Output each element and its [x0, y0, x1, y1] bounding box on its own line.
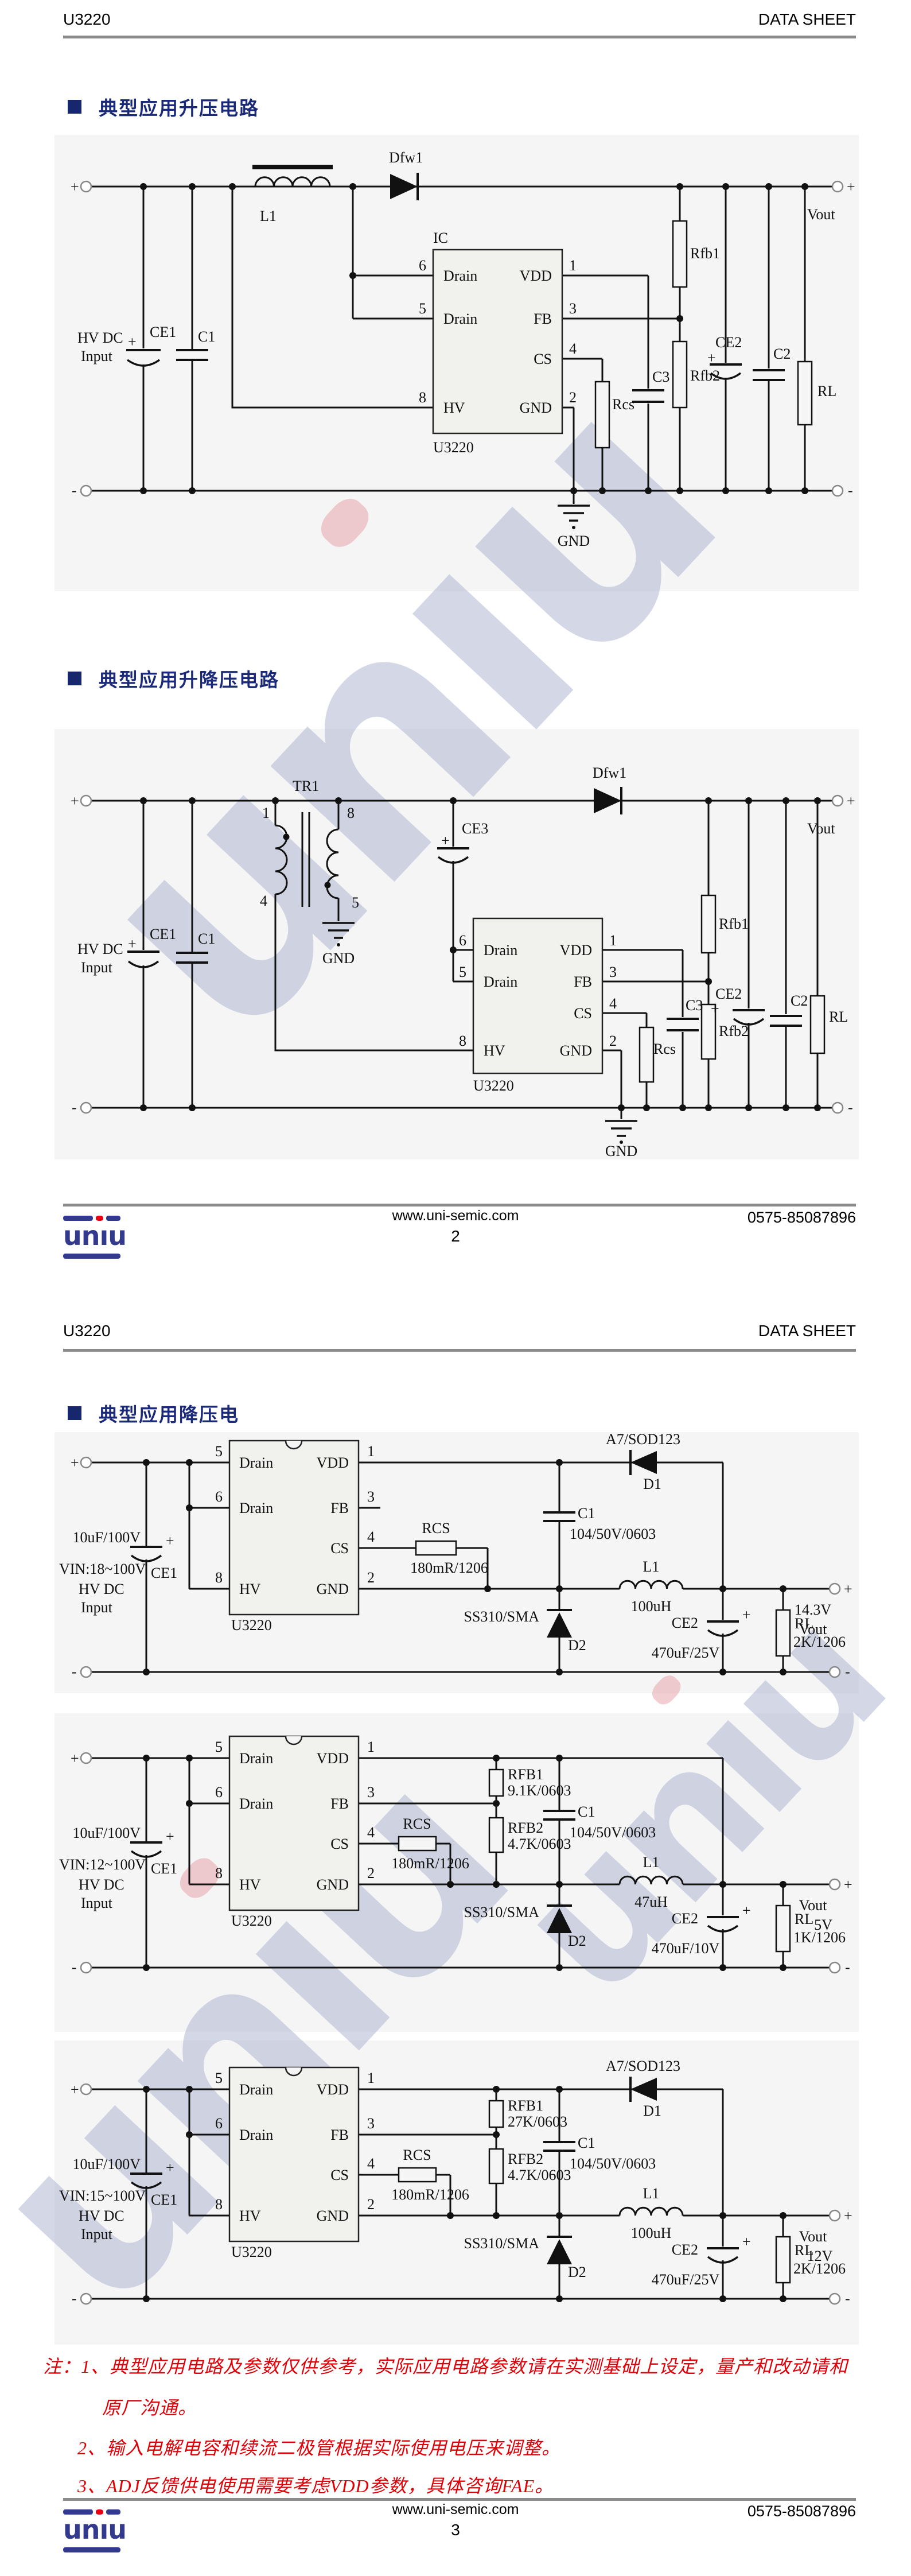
pin-hv: HV [443, 399, 465, 416]
logo-underline [63, 1254, 120, 1259]
ce2-plus: + [742, 1902, 751, 1919]
vout-label: Vout [807, 820, 835, 837]
minus-out: - [845, 1959, 850, 1976]
pin8-num: 8 [215, 2196, 223, 2213]
c1-label: C1 [198, 328, 215, 345]
rfb1-label: RFB1 [508, 2097, 543, 2114]
l1-value: 47uH [634, 1894, 668, 1910]
page2-header-rule [63, 36, 856, 38]
datasheet-page: U3220 DATA SHEET 典型应用升压电路 unıu [0, 0, 911, 2576]
buck2-circuit-schematic: + - + - 10uF/100V + CE1 VIN:12~100V HV D… [54, 1713, 859, 2032]
part-label: U3220 [231, 1617, 272, 1634]
c1-value: 104/50V/0603 [570, 1824, 656, 1841]
note-line-2: 原厂沟通。 [102, 2393, 197, 2420]
d2-type: SS310/SMA [464, 2235, 540, 2252]
l1-label: L1 [643, 2185, 660, 2202]
phone-page2: 0575-85087896 [631, 1209, 856, 1227]
pin5-num: 5 [215, 2070, 223, 2086]
pin-cs: CS [574, 1005, 592, 1022]
pin1-num: 1 [367, 1443, 375, 1460]
plus-in: + [71, 1750, 79, 1767]
part-label: U3220 [433, 439, 474, 456]
dfw1-label: Dfw1 [593, 765, 626, 781]
page2-doc-title: DATA SHEET [574, 10, 856, 29]
c1-label: C1 [198, 930, 215, 947]
hvdc-label: HV DC [79, 2208, 124, 2224]
pin6-num: 6 [215, 1488, 223, 1505]
rl-label: RL [829, 1008, 848, 1025]
rfb2-label: Rfb2 [719, 1023, 749, 1039]
vout-line1: Vout [799, 1897, 827, 1914]
rfb1-label: Rfb1 [690, 245, 720, 262]
rcs-value: 180mR/1206 [410, 1559, 488, 1576]
gnd-tr-label: GND [322, 950, 355, 967]
d1-type: A7/SOD123 [606, 1432, 680, 1448]
d2-diode-icon [547, 1610, 572, 1638]
c1-label: C1 [578, 1505, 595, 1522]
ce2-label: CE2 [715, 334, 742, 351]
rcs-label: Rcs [653, 1041, 676, 1057]
ce1-plus: + [166, 1533, 174, 1549]
vout-line1: 14.3V [795, 1601, 832, 1618]
pin-cs: CS [330, 2167, 349, 2183]
page3-header-rule [63, 1349, 856, 1352]
logo-underline [63, 2547, 120, 2552]
pin3-num: 3 [609, 964, 617, 980]
minus-in: - [72, 1663, 77, 1680]
d1-diode-icon [630, 1450, 657, 1475]
page3-product-title: U3220 [63, 1322, 111, 1340]
rfb2-label: RFB2 [508, 2151, 543, 2167]
d2-label: D2 [568, 2264, 586, 2280]
d2-type: SS310/SMA [464, 1904, 540, 1921]
vin-label: VIN:15~100V [59, 2187, 146, 2204]
pin1-num: 1 [367, 2070, 375, 2086]
input-label: Input [81, 959, 113, 976]
rfb2-value: 4.7K/0603 [508, 1836, 571, 1852]
ce1-plus: + [128, 936, 137, 952]
transformer-phase-dots [283, 834, 331, 889]
ce2-value: 470uF/25V [652, 1644, 720, 1661]
hvdc-label: HV DC [79, 1581, 124, 1597]
buckboost-circuit-schematic: + - + - Vout TR1 1 8 4 5 GND Dfw1 CE3 + … [54, 729, 859, 1159]
d2-diode-icon [547, 1906, 572, 1933]
boost-earth-icon [558, 506, 590, 529]
plus-out: + [847, 793, 855, 809]
bullet-square [68, 672, 81, 685]
pin-hv: HV [239, 1581, 261, 1597]
dfw1-diode-icon [594, 787, 621, 814]
pin-drain2: Drain [239, 1500, 273, 1516]
pin-drain1: Drain [484, 942, 517, 959]
c1-label: C1 [578, 2135, 595, 2151]
gnd-label: GND [558, 533, 590, 549]
buckboost-terminals [81, 796, 843, 1113]
ce3-label: CE3 [462, 820, 488, 837]
minus-out: - [848, 1099, 853, 1116]
pin-fb: FB [330, 1500, 349, 1516]
pin6-num: 6 [459, 932, 466, 949]
ce2-plus: + [742, 2233, 751, 2250]
plus-out: + [844, 1581, 852, 1597]
minus-in: - [72, 2290, 77, 2307]
pin8-num: 8 [215, 1865, 223, 1881]
pin5-num: 5 [215, 1739, 223, 1755]
l1-value: 100uH [631, 1598, 672, 1615]
l1-label: L1 [643, 1558, 660, 1575]
d1-diode-icon [630, 2077, 657, 2102]
pin4-num: 4 [569, 340, 577, 357]
pin-gnd: GND [520, 399, 552, 416]
pin-hv: HV [239, 1876, 261, 1893]
minus-out: - [845, 1663, 850, 1680]
ce2-label: CE2 [715, 986, 742, 1002]
pin2-num: 2 [367, 2196, 375, 2213]
pin-drain1: Drain [443, 267, 477, 284]
c1-label: C1 [578, 1803, 595, 1820]
plus-in: + [71, 2081, 79, 2098]
pin-drain2: Drain [443, 311, 477, 327]
ce1-plus: + [166, 2159, 174, 2176]
ce1-value: 10uF/100V [73, 2156, 141, 2172]
pin-hv: HV [239, 2208, 261, 2224]
pin5-num: 5 [459, 964, 466, 980]
buck2-labels: + - + - 10uF/100V + CE1 VIN:12~100V HV D… [59, 1739, 852, 1976]
rcs-label: Rcs [612, 396, 634, 413]
pin3-num: 3 [569, 300, 577, 317]
minus-in: - [72, 1959, 77, 1976]
pin-vdd: VDD [560, 942, 592, 959]
c1-value: 104/50V/0603 [570, 2155, 656, 2172]
pin-gnd: GND [317, 1876, 349, 1893]
c1-value: 104/50V/0603 [570, 1526, 656, 1542]
pin-gnd: GND [317, 2208, 349, 2224]
section-boost-title: 典型应用升压电路 [99, 93, 259, 121]
pin3-num: 3 [367, 2115, 375, 2132]
tr-pin5: 5 [352, 894, 359, 911]
note-line-3: 2、输入电解电容和续流二极管根据实际使用电压来调整。 [77, 2434, 560, 2460]
inductor-core-bar [252, 165, 333, 169]
tr-pin4: 4 [260, 893, 267, 909]
ce1-value: 10uF/100V [73, 1825, 141, 1841]
page2-footer-rule [63, 1204, 856, 1206]
c2-label: C2 [773, 346, 791, 362]
pin-fb: FB [330, 2127, 349, 2143]
c3-label: C3 [686, 997, 703, 1014]
rfb1-label: Rfb1 [719, 915, 749, 932]
pin-hv: HV [484, 1042, 505, 1059]
page3-doc-title: DATA SHEET [574, 1322, 856, 1340]
d2-label: D2 [568, 1637, 586, 1654]
l1-label: L1 [260, 208, 277, 224]
hvdc-label: HV DC [77, 329, 123, 346]
plus-in: + [71, 1454, 79, 1471]
pin2-num: 2 [367, 1569, 375, 1586]
rcs-value: 180mR/1206 [391, 2186, 469, 2203]
pin8-num: 8 [419, 389, 426, 406]
pin-drain1: Drain [239, 1454, 273, 1471]
rcs-label: RCS [422, 1520, 450, 1537]
l1-label: L1 [643, 1854, 660, 1871]
pin5-num: 5 [419, 300, 426, 317]
rcs-value: 180mR/1206 [391, 1855, 469, 1872]
buckboost-electrolytic-arcs [129, 857, 764, 1025]
pin1-num: 1 [609, 932, 617, 949]
pin4-num: 4 [367, 1528, 375, 1545]
section-buck-heading: 典型应用降压电 [68, 1399, 239, 1427]
vout-line2: 5V [814, 1917, 832, 1933]
pin8-num: 8 [459, 1033, 466, 1049]
d2-diode-icon [547, 2237, 572, 2264]
dfw1-diode-icon [390, 173, 418, 200]
ce1-plus: + [128, 333, 137, 350]
minus-out: - [848, 482, 853, 499]
d2-label: D2 [568, 1933, 586, 1949]
ce2-value: 470uF/10V [652, 1940, 720, 1957]
pin-cs: CS [534, 351, 552, 367]
page3-footer-rule [63, 2498, 856, 2501]
input-label: Input [81, 348, 113, 364]
plus-in: + [71, 793, 79, 809]
section-boost-heading: 典型应用升压电路 [68, 93, 259, 121]
buck1-resistors [416, 1541, 790, 1656]
tr-pin8: 8 [347, 805, 355, 821]
ce1-label: CE1 [151, 2191, 177, 2208]
ce2-plus: + [711, 1000, 719, 1017]
buck3-circuit-schematic: + - + - 10uF/100V + CE1 VIN:15~100V HV D… [54, 2040, 859, 2345]
note-line-4: 3、ADJ反馈供电使用需要考虑VDD参数，具体咨询FAE。 [77, 2472, 554, 2498]
pin3-num: 3 [367, 1784, 375, 1801]
ce1-plus: + [166, 1828, 174, 1845]
rcs-label: RCS [403, 2147, 431, 2163]
ce2-label: CE2 [672, 1615, 698, 1631]
pin4-num: 4 [367, 1824, 375, 1841]
d2-type: SS310/SMA [464, 1608, 540, 1625]
pin-fb: FB [574, 973, 592, 990]
rfb1-label: RFB1 [508, 1766, 543, 1783]
minus-in: - [72, 1099, 77, 1116]
pin-fb: FB [330, 1795, 349, 1812]
pin-drain1: Drain [239, 2081, 273, 2098]
page-number-3: 3 [54, 2521, 857, 2539]
part-label: U3220 [231, 1912, 272, 1929]
vin-label: VIN:12~100V [59, 1856, 146, 1873]
pin6-num: 6 [215, 1784, 223, 1801]
bullet-square [68, 100, 81, 114]
vout-label: Vout [807, 206, 835, 223]
pin-vdd: VDD [520, 267, 552, 284]
phone-page3: 0575-85087896 [631, 2503, 856, 2520]
rcs-label: RCS [403, 1815, 431, 1832]
rfb2-label: Rfb2 [690, 367, 720, 384]
pin6-num: 6 [419, 257, 426, 274]
ce1-value: 10uF/100V [73, 1529, 141, 1546]
rfb2-label: RFB2 [508, 1820, 543, 1836]
minus-in: - [72, 482, 77, 499]
pin6-num: 6 [215, 2115, 223, 2132]
pin-cs: CS [330, 1836, 349, 1852]
pin5-num: 5 [215, 1443, 223, 1460]
ce3-plus: + [441, 832, 450, 849]
d1-label: D1 [643, 2102, 661, 2119]
section-buck-title: 典型应用降压电 [99, 1399, 239, 1427]
plus-out: + [844, 2208, 852, 2224]
c2-label: C2 [791, 992, 808, 1009]
rl-label: RL [817, 383, 836, 399]
ce1-label: CE1 [151, 1860, 177, 1877]
ce2-plus: + [742, 1607, 751, 1623]
page2-product-title: U3220 [63, 10, 111, 29]
input-label: Input [81, 1599, 113, 1616]
vout-line1: Vout [799, 2228, 827, 2245]
input-label: Input [81, 2226, 113, 2243]
part-label: U3220 [231, 2244, 272, 2260]
input-label: Input [81, 1895, 113, 1911]
dfw1-label: Dfw1 [389, 149, 423, 166]
pin-vdd: VDD [317, 1750, 349, 1767]
pin2-num: 2 [569, 389, 577, 406]
c3-label: C3 [652, 368, 669, 385]
rfb1-value: 27K/0603 [508, 2113, 567, 2130]
rfb1-value: 9.1K/0603 [508, 1782, 571, 1799]
hvdc-label: HV DC [77, 941, 123, 957]
pin1-num: 1 [367, 1739, 375, 1755]
tr1-label: TR1 [293, 778, 319, 794]
buck3-labels: + - + - 10uF/100V + CE1 VIN:15~100V HV D… [59, 2058, 852, 2307]
vin-label: VIN:18~100V [59, 1561, 146, 1577]
ce2-value: 470uF/25V [652, 2271, 720, 2288]
hvdc-label: HV DC [79, 1876, 124, 1893]
gnd-label: GND [605, 1143, 637, 1159]
buck1-circuit-schematic: + - + - 10uF/100V + CE1 VIN:18~100V HV D… [54, 1432, 859, 1693]
plus-out: + [844, 1876, 852, 1893]
part-label: U3220 [473, 1077, 514, 1094]
pin-fb: FB [534, 311, 552, 327]
vout-line2: 12V [807, 2248, 833, 2264]
plus-out: + [847, 179, 855, 195]
pin2-num: 2 [609, 1033, 617, 1049]
ce1-label: CE1 [150, 926, 176, 942]
rfb2-value: 4.7K/0603 [508, 2167, 571, 2183]
pin4-num: 4 [367, 2155, 375, 2172]
pin2-num: 2 [367, 1865, 375, 1881]
minus-out: - [845, 2290, 850, 2307]
pin8-num: 8 [215, 1569, 223, 1586]
plus-in: + [71, 179, 79, 195]
note-line-1: 注：1、典型应用电路及参数仅供参考，实际应用电路参数请在实测基础上设定，量产和改… [43, 2352, 848, 2379]
pin3-num: 3 [367, 1488, 375, 1505]
pin-drain2: Drain [239, 1795, 273, 1812]
pin4-num: 4 [609, 995, 617, 1012]
pin-cs: CS [330, 1540, 349, 1557]
pin1-num: 1 [569, 257, 577, 274]
buck1-labels: + - + - 10uF/100V + CE1 VIN:18~100V HV D… [59, 1432, 852, 1680]
page-number-2: 2 [54, 1227, 857, 1246]
pin-drain1: Drain [239, 1750, 273, 1767]
ic-label: IC [433, 230, 448, 246]
pin-gnd: GND [317, 1581, 349, 1597]
d1-type: A7/SOD123 [606, 2058, 680, 2074]
l1-value: 100uH [631, 2225, 672, 2241]
ce1-label: CE1 [150, 324, 176, 340]
ce2-plus: + [707, 350, 716, 366]
bullet-square [68, 1406, 81, 1420]
pin-gnd: GND [560, 1042, 592, 1059]
pin-vdd: VDD [317, 2081, 349, 2098]
ce1-label: CE1 [151, 1565, 177, 1581]
d1-label: D1 [643, 1476, 661, 1492]
pin-drain2: Drain [484, 973, 517, 990]
pin-vdd: VDD [317, 1454, 349, 1471]
ce2-label: CE2 [672, 2241, 698, 2258]
vout-line2: Vout [799, 1621, 827, 1638]
ce2-label: CE2 [672, 1910, 698, 1927]
tr-pin1: 1 [262, 805, 270, 821]
pin-drain2: Drain [239, 2127, 273, 2143]
boost-circuit-schematic: + - + - Vout Dfw1 L1 IC U3220 CE1 + HV D… [54, 135, 859, 591]
